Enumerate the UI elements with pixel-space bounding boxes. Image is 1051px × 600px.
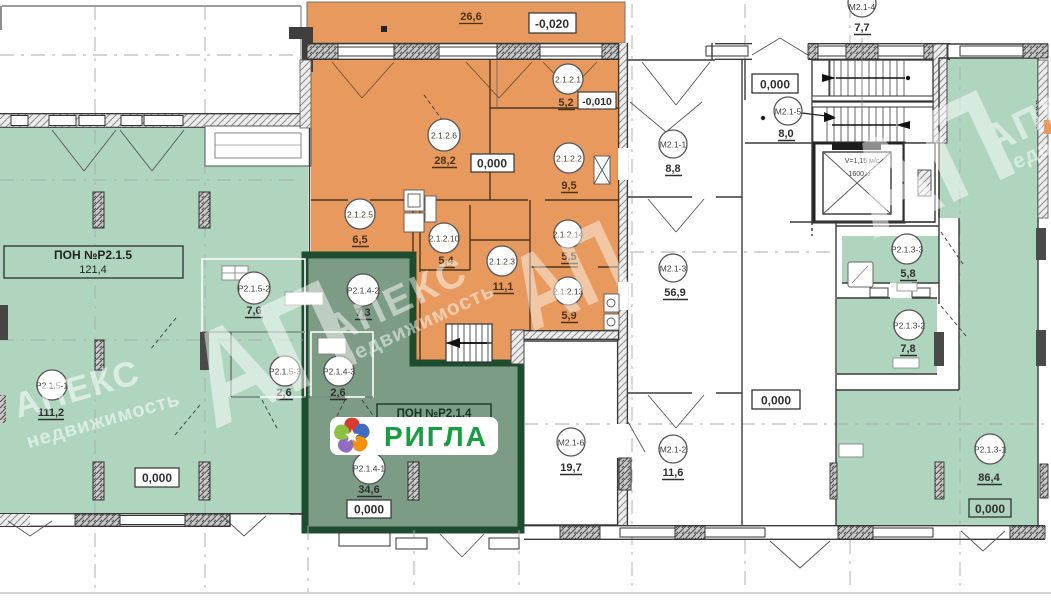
svg-text:М2.1-4: М2.1-4 xyxy=(849,2,876,12)
svg-text:2.1.2.2: 2.1.2.2 xyxy=(556,154,582,164)
svg-text:56,9: 56,9 xyxy=(664,287,685,299)
svg-text:М2.1-1: М2.1-1 xyxy=(660,140,687,150)
svg-text:26,6: 26,6 xyxy=(460,11,481,23)
svg-text:5,2: 5,2 xyxy=(558,97,573,109)
svg-text:ПОН №Р2.1.5: ПОН №Р2.1.5 xyxy=(54,248,132,262)
svg-text:2.1.2.5: 2.1.2.5 xyxy=(347,210,373,220)
svg-text:0,000: 0,000 xyxy=(477,157,507,171)
svg-text:0,000: 0,000 xyxy=(354,503,384,517)
svg-text:РИГЛА: РИГЛА xyxy=(384,421,488,452)
svg-text:0,000: 0,000 xyxy=(761,394,791,408)
svg-text:34,6: 34,6 xyxy=(358,484,379,496)
svg-text:0,000: 0,000 xyxy=(760,78,790,92)
svg-text:2.1.2.6: 2.1.2.6 xyxy=(431,131,457,141)
svg-text:М2.1-3: М2.1-3 xyxy=(660,264,687,274)
svg-text:2.1.2.1: 2.1.2.1 xyxy=(555,75,581,85)
svg-text:Р2.1.3-2: Р2.1.3-2 xyxy=(893,321,925,331)
svg-text:5,8: 5,8 xyxy=(900,268,915,280)
svg-text:8,0: 8,0 xyxy=(778,128,793,140)
svg-text:7,8: 7,8 xyxy=(900,343,915,355)
svg-text:0,000: 0,000 xyxy=(142,471,172,485)
svg-text:М2.1-5: М2.1-5 xyxy=(775,107,802,117)
svg-text:6,5: 6,5 xyxy=(352,234,367,246)
svg-text:2.1.2.10: 2.1.2.10 xyxy=(429,234,460,244)
svg-text:М2.1-2: М2.1-2 xyxy=(660,445,687,455)
svg-text:0,000: 0,000 xyxy=(975,502,1005,516)
svg-text:28,2: 28,2 xyxy=(434,155,455,167)
svg-text:7,7: 7,7 xyxy=(854,22,869,34)
svg-text:М2.1-6: М2.1-6 xyxy=(558,438,585,448)
svg-text:86,4: 86,4 xyxy=(978,472,1000,484)
svg-text:-0,020: -0,020 xyxy=(535,17,569,31)
svg-text:-0,010: -0,010 xyxy=(582,96,612,108)
svg-text:121,4: 121,4 xyxy=(79,264,107,276)
svg-text:Р2.1.3-1: Р2.1.3-1 xyxy=(974,445,1006,455)
svg-text:8,8: 8,8 xyxy=(665,163,680,175)
svg-text:11,6: 11,6 xyxy=(663,467,684,479)
svg-text:19,7: 19,7 xyxy=(560,462,581,474)
svg-text:9,5: 9,5 xyxy=(561,180,576,192)
svg-text:Р2.1.4-1: Р2.1.4-1 xyxy=(353,464,385,474)
